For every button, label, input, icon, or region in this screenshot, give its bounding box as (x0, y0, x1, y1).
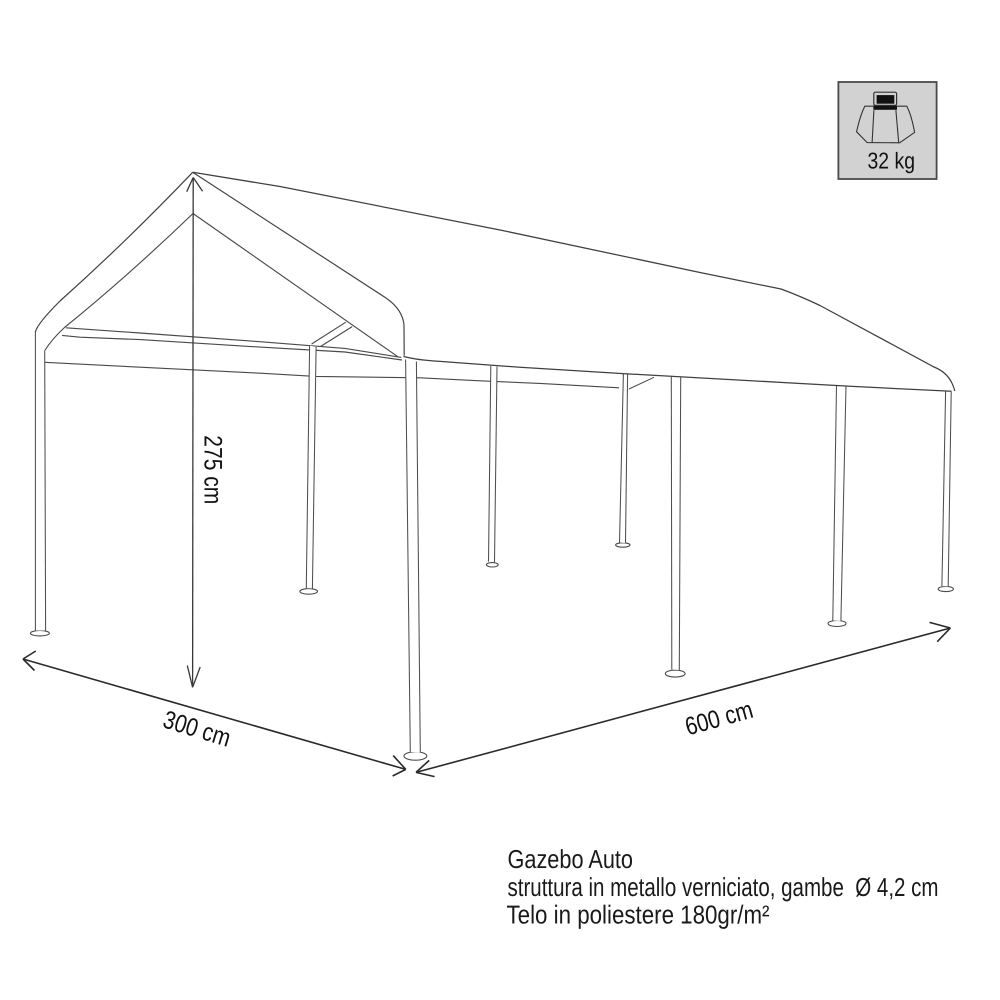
svg-text:Gazebo Auto: Gazebo Auto (508, 844, 634, 874)
svg-text:300 cm: 300 cm (160, 706, 234, 753)
svg-text:32 kg: 32 kg (868, 148, 916, 174)
svg-text:struttura in metallo verniciat: struttura in metallo verniciato, gambe Ø… (508, 872, 939, 902)
svg-text:600 cm: 600 cm (682, 696, 756, 741)
svg-text:Telo in poliestere 180gr/m²: Telo in poliestere 180gr/m² (507, 899, 770, 929)
svg-text:275 cm: 275 cm (199, 435, 227, 504)
